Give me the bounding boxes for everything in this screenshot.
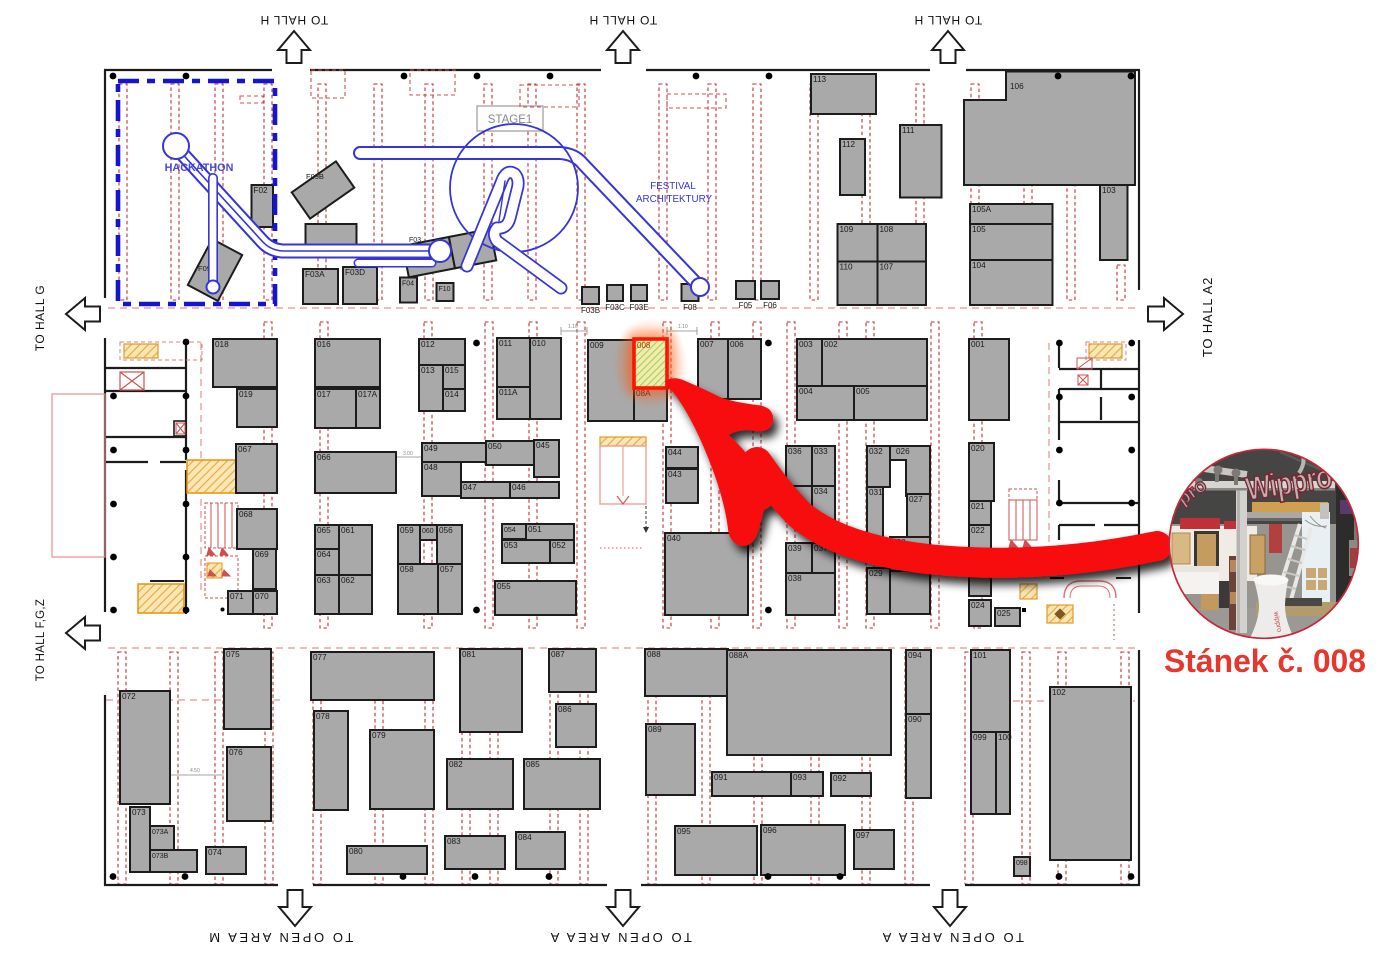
svg-text:001: 001 bbox=[971, 340, 985, 349]
svg-text:056: 056 bbox=[439, 526, 453, 535]
svg-text:017: 017 bbox=[317, 390, 331, 399]
svg-text:071: 071 bbox=[230, 592, 244, 601]
svg-text:TO OPEN AREA A: TO OPEN AREA A bbox=[880, 930, 1024, 945]
svg-text:103: 103 bbox=[1102, 186, 1116, 195]
svg-text:4.50: 4.50 bbox=[190, 768, 200, 774]
svg-text:012: 012 bbox=[421, 340, 435, 349]
svg-text:013: 013 bbox=[421, 366, 435, 375]
svg-text:091: 091 bbox=[714, 773, 728, 782]
svg-text:085: 085 bbox=[526, 760, 540, 769]
svg-text:108: 108 bbox=[880, 225, 894, 234]
svg-text:TO HALL A2: TO HALL A2 bbox=[1200, 277, 1215, 357]
svg-text:080: 080 bbox=[349, 847, 363, 856]
svg-text:074: 074 bbox=[208, 848, 222, 857]
svg-text:004: 004 bbox=[799, 387, 813, 396]
svg-text:057: 057 bbox=[440, 565, 454, 574]
svg-text:TO OPEN AREA M: TO OPEN AREA M bbox=[207, 930, 354, 945]
svg-text:106: 106 bbox=[1010, 82, 1024, 91]
svg-text:073A: 073A bbox=[152, 829, 169, 836]
svg-text:F02: F02 bbox=[254, 186, 269, 195]
svg-text:113: 113 bbox=[813, 75, 826, 84]
svg-text:077: 077 bbox=[313, 653, 327, 662]
svg-text:059: 059 bbox=[400, 526, 414, 535]
svg-text:F04: F04 bbox=[402, 281, 414, 288]
svg-text:048: 048 bbox=[424, 463, 438, 472]
svg-text:040: 040 bbox=[667, 534, 681, 543]
svg-text:044: 044 bbox=[668, 448, 682, 457]
svg-text:017A: 017A bbox=[358, 390, 378, 399]
svg-text:F05: F05 bbox=[739, 301, 753, 310]
svg-text:068: 068 bbox=[239, 510, 253, 519]
svg-text:097: 097 bbox=[856, 831, 870, 840]
svg-text:093: 093 bbox=[793, 773, 807, 782]
svg-text:F03B: F03B bbox=[581, 306, 600, 315]
svg-text:045: 045 bbox=[536, 441, 550, 450]
svg-text:1.10: 1.10 bbox=[678, 324, 688, 330]
svg-text:083: 083 bbox=[447, 837, 461, 846]
svg-text:098: 098 bbox=[1016, 860, 1028, 867]
svg-text:003: 003 bbox=[799, 340, 813, 349]
svg-text:F03E: F03E bbox=[629, 303, 648, 312]
svg-text:107: 107 bbox=[880, 263, 894, 272]
svg-text:049: 049 bbox=[424, 444, 438, 453]
svg-text:032: 032 bbox=[869, 447, 883, 456]
svg-text:TO HALL H: TO HALL H bbox=[914, 13, 983, 27]
svg-text:067: 067 bbox=[238, 445, 252, 454]
svg-text:090: 090 bbox=[908, 715, 922, 724]
svg-text:102: 102 bbox=[1052, 688, 1066, 697]
svg-text:FESTIVAL: FESTIVAL bbox=[650, 181, 696, 192]
svg-text:100: 100 bbox=[998, 733, 1012, 742]
svg-text:072: 072 bbox=[122, 692, 136, 701]
svg-text:F03A: F03A bbox=[305, 270, 325, 279]
svg-text:051: 051 bbox=[528, 525, 542, 534]
svg-text:011A: 011A bbox=[499, 388, 518, 397]
svg-text:070: 070 bbox=[255, 592, 269, 601]
svg-text:021: 021 bbox=[971, 502, 985, 511]
svg-text:022: 022 bbox=[971, 526, 985, 535]
svg-text:008: 008 bbox=[637, 341, 651, 350]
svg-text:101: 101 bbox=[973, 651, 987, 660]
svg-text:F03D: F03D bbox=[345, 268, 365, 277]
svg-text:029: 029 bbox=[869, 569, 883, 578]
svg-text:099: 099 bbox=[973, 733, 987, 742]
svg-text:033: 033 bbox=[814, 447, 828, 456]
svg-text:ARCHITEKTURY: ARCHITEKTURY bbox=[636, 194, 712, 205]
svg-text:082: 082 bbox=[449, 760, 463, 769]
svg-text:063: 063 bbox=[317, 576, 331, 585]
svg-text:054: 054 bbox=[504, 527, 516, 534]
svg-text:058: 058 bbox=[400, 565, 414, 574]
svg-text:046: 046 bbox=[512, 483, 526, 492]
svg-text:F06: F06 bbox=[763, 301, 777, 310]
svg-text:036: 036 bbox=[788, 447, 802, 456]
svg-text:F08: F08 bbox=[683, 303, 697, 312]
svg-text:024: 024 bbox=[971, 601, 985, 610]
svg-text:109: 109 bbox=[840, 225, 854, 234]
svg-text:Stánek č. 008: Stánek č. 008 bbox=[1164, 643, 1366, 679]
svg-text:092: 092 bbox=[833, 774, 847, 783]
svg-text:087: 087 bbox=[551, 650, 565, 659]
svg-text:066: 066 bbox=[317, 453, 331, 462]
svg-text:019: 019 bbox=[239, 390, 253, 399]
svg-text:047: 047 bbox=[463, 483, 477, 492]
svg-text:TO HALL F,G,Z: TO HALL F,G,Z bbox=[35, 599, 47, 682]
svg-text:011: 011 bbox=[499, 339, 512, 348]
svg-text:027: 027 bbox=[909, 495, 923, 504]
svg-text:062: 062 bbox=[341, 576, 355, 585]
svg-text:006: 006 bbox=[730, 340, 744, 349]
svg-text:039: 039 bbox=[788, 544, 802, 553]
svg-text:038: 038 bbox=[788, 574, 802, 583]
svg-text:105: 105 bbox=[972, 225, 986, 234]
svg-text:043: 043 bbox=[668, 470, 682, 479]
svg-text:F03: F03 bbox=[409, 237, 421, 244]
svg-text:112: 112 bbox=[842, 140, 855, 149]
svg-text:TO OPEN AREA A: TO OPEN AREA A bbox=[548, 930, 692, 945]
svg-text:078: 078 bbox=[316, 712, 330, 721]
svg-text:031: 031 bbox=[869, 488, 883, 497]
svg-text:088: 088 bbox=[647, 650, 661, 659]
svg-text:010: 010 bbox=[532, 339, 546, 348]
svg-text:016: 016 bbox=[317, 340, 331, 349]
svg-text:075: 075 bbox=[226, 650, 240, 659]
svg-text:026: 026 bbox=[896, 447, 910, 456]
svg-text:053: 053 bbox=[504, 541, 518, 550]
svg-text:020: 020 bbox=[971, 444, 985, 453]
svg-text:014: 014 bbox=[445, 390, 459, 399]
svg-text:079: 079 bbox=[372, 731, 386, 740]
svg-text:F03C: F03C bbox=[605, 303, 625, 312]
svg-text:3.00: 3.00 bbox=[403, 451, 413, 457]
svg-text:005: 005 bbox=[856, 387, 870, 396]
svg-text:002: 002 bbox=[824, 340, 838, 349]
svg-text:F10: F10 bbox=[439, 286, 451, 293]
svg-text:1.10: 1.10 bbox=[568, 324, 578, 330]
svg-text:076: 076 bbox=[229, 748, 243, 757]
svg-text:TO HALL H: TO HALL H bbox=[260, 13, 329, 27]
svg-text:111: 111 bbox=[902, 126, 915, 135]
svg-text:015: 015 bbox=[445, 366, 459, 375]
svg-text:055: 055 bbox=[497, 582, 511, 591]
svg-text:073: 073 bbox=[132, 808, 146, 817]
svg-text:104: 104 bbox=[972, 261, 986, 270]
svg-text:081: 081 bbox=[462, 650, 476, 659]
svg-text:009: 009 bbox=[590, 341, 604, 350]
svg-text:061: 061 bbox=[341, 526, 355, 535]
svg-text:065: 065 bbox=[317, 526, 331, 535]
svg-text:060: 060 bbox=[422, 528, 434, 535]
svg-text:096: 096 bbox=[763, 826, 777, 835]
svg-text:089: 089 bbox=[648, 725, 662, 734]
svg-text:F09B: F09B bbox=[306, 172, 324, 181]
svg-text:086: 086 bbox=[558, 705, 572, 714]
svg-text:105A: 105A bbox=[972, 205, 992, 214]
svg-text:034: 034 bbox=[814, 487, 828, 496]
svg-text:050: 050 bbox=[488, 442, 502, 451]
svg-text:HACKATHON: HACKATHON bbox=[165, 162, 234, 174]
svg-text:110: 110 bbox=[840, 263, 853, 272]
svg-text:018: 018 bbox=[215, 340, 229, 349]
svg-text:095: 095 bbox=[677, 827, 691, 836]
svg-text:084: 084 bbox=[518, 833, 532, 842]
svg-text:088A: 088A bbox=[729, 651, 749, 660]
svg-text:069: 069 bbox=[255, 550, 269, 559]
svg-text:073B: 073B bbox=[152, 853, 169, 860]
svg-text:TO HALL G: TO HALL G bbox=[33, 285, 47, 352]
svg-text:TO HALL H: TO HALL H bbox=[589, 13, 658, 27]
svg-text:094: 094 bbox=[908, 651, 922, 660]
svg-text:064: 064 bbox=[317, 550, 331, 559]
svg-text:007: 007 bbox=[700, 340, 714, 349]
svg-text:052: 052 bbox=[552, 541, 566, 550]
svg-text:025: 025 bbox=[997, 609, 1011, 618]
